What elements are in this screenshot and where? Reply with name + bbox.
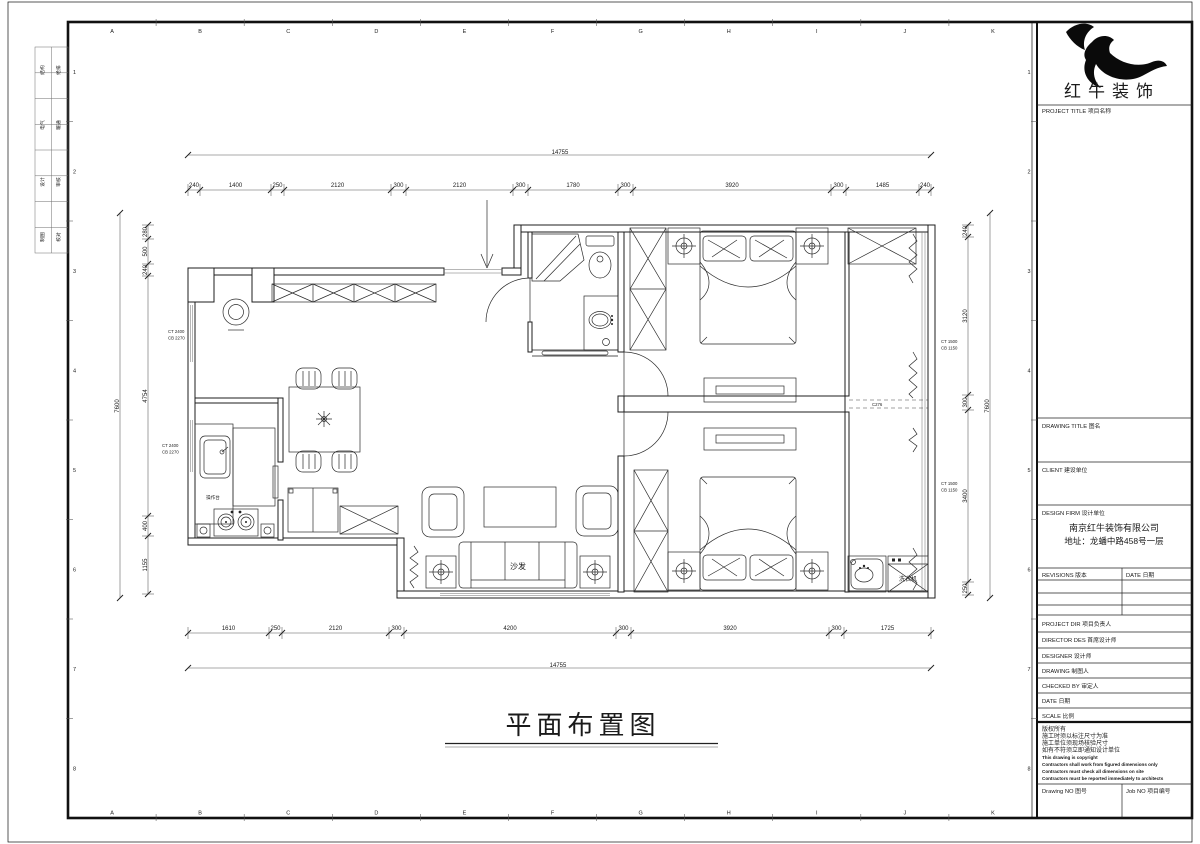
grid-letter: J [903,29,906,35]
lamp-icon [583,560,607,584]
window-mark: CB 2270 [168,336,185,341]
grid-letter: G [638,811,642,817]
dim-label: 300 [963,397,969,408]
kitchen-corner-posts [197,524,274,537]
door-bedroom-bottom [624,412,668,456]
cad-sheet: 2401400250212030021203001780300392030014… [0,0,1200,844]
shoe-cabinet [340,506,398,534]
plant-zigzag [410,546,418,588]
dim-label: 1780 [566,183,580,189]
sign-strip-label: 结构 [39,65,46,75]
sign-strip-label: 校对 [55,232,62,242]
dim-label: 3920 [725,183,739,189]
wardrobe-bedroom-top [630,228,666,350]
annotation-layer: 2401400250212030021203001780300392030014… [39,19,1171,821]
grid-letter: I [816,811,818,817]
dim-label: 250 [272,183,283,189]
grid-letter: J [903,811,906,817]
window-mark: CB 1150 [941,488,958,493]
sideboard-two-door [288,488,338,532]
dim-label: 1485 [876,183,890,189]
dim-label: 300 [620,183,631,189]
dim-label: 300 [831,626,842,632]
dim-label: 250 [270,626,281,632]
grid-number: 7 [1027,667,1030,673]
grid-letter: H [727,29,731,35]
tb-checked-by: CHECKED BY 审定人 [1042,682,1099,690]
tb-project-dir: PROJECT DIR 项目负责人 [1042,620,1111,628]
tb-address: 地址：龙蟠中路458号一层 [1064,536,1163,546]
dim-label: 300 [391,626,402,632]
grid-letter: F [551,811,555,817]
grid-letter: D [374,29,378,35]
grid-number: 2 [73,169,76,175]
grid-number: 3 [73,269,76,275]
tb-note: Contractors must check all dimensions on… [1042,769,1144,774]
dim-label: 7600 [985,399,991,413]
tb-designer: DESIGNER 设计师 [1042,652,1091,660]
sign-strip-label: 设计 [39,177,46,187]
tb-note: 如有不符须立即通知设计单位 [1042,746,1120,754]
tb-revisions: REVISIONS 版本 [1042,571,1087,579]
bathroom-basin [584,296,618,350]
tb-note: 版权所有 [1042,725,1066,733]
grid-number: 5 [1027,468,1030,474]
dim-label: 240 [920,183,931,189]
dim-label: 280 [143,226,149,237]
window-mark: CT 2400 [162,443,179,448]
tb-scale: SCALE 比例 [1042,712,1074,720]
grid-letter: A [110,811,114,817]
grid-letter: F [551,29,555,35]
coffee-table [484,487,556,527]
grid-letter: C [286,811,290,817]
kitchen-sink [200,436,230,478]
grid-number: 5 [73,468,76,474]
grid-letter: D [374,811,378,817]
grid-number: 4 [73,368,76,374]
dim-label: 1155 [143,558,149,572]
dim-label: 1725 [881,626,895,632]
dim-label: 4754 [143,389,149,403]
bed-top [700,231,796,344]
dim-label: 7600 [115,399,121,413]
grid-number: 6 [73,567,76,573]
door-bedroom-top [624,352,668,396]
dim-label: 250 [963,583,969,594]
tb-note: Contractors must be reported immediately… [1042,776,1164,781]
tb-date-col: DATE 日期 [1126,572,1154,579]
tb-job-no: Job NO 项目编号 [1126,787,1171,795]
sign-strip-label: 制图 [39,232,46,242]
tb-design-firm: DESIGN FIRM 设计单位 [1042,509,1105,517]
grid-letter: B [198,29,202,35]
dim-label: 240 [143,264,149,275]
tb-client: CLIENT 建设单位 [1042,466,1088,474]
sofa-label: 沙发 [510,561,526,571]
dresser-bedroom-bottom [704,428,796,450]
grid-letter: E [463,29,467,35]
grid-letter: E [463,811,467,817]
table-centerpiece [316,411,332,427]
dim-label: 300 [515,183,526,189]
hall-cabinet-row [272,284,436,302]
sign-strip-label: 审核 [55,177,62,187]
grid-number: 1 [1027,70,1030,76]
laundry-basin [848,556,886,592]
grid-letter: A [110,29,114,35]
tb-note: Contractors shall work from figured dime… [1042,762,1158,767]
kitchen-stove [214,509,258,536]
grid-number: 3 [1027,269,1030,275]
tb-note: 施工时须以标注尺寸为准 [1042,732,1108,740]
shower [532,234,584,281]
tb-drawing-no: Drawing NO 图号 [1042,787,1087,795]
logo-bull-icon [1066,24,1167,88]
drawing-title-underline [445,744,718,748]
dim-label: 14755 [550,663,567,669]
dim-label: 400 [143,520,149,531]
sign-strip-label: 暖通 [55,120,62,130]
plant-pot [223,299,249,330]
armchair-right [576,486,618,536]
entry-arrow [481,200,493,268]
lamp-icon [672,234,696,258]
balcony-mark: C276 [872,402,883,407]
armchair-left [422,487,464,537]
dining-table [289,387,360,452]
signature-strip [35,47,68,253]
grid-letter: G [638,29,642,35]
grid-number: 8 [1027,766,1030,772]
toilet [586,236,614,278]
dim-label: 3400 [963,489,969,503]
tb-drawing-title: DRAWING TITLE 图名 [1042,422,1100,430]
dim-label: 240 [189,183,200,189]
window-mark: CB 2270 [162,450,179,455]
dim-label: 2120 [329,626,343,632]
counter-label: 操作台 [206,494,220,501]
tb-project-title: PROJECT TITLE 项目名称 [1042,107,1111,115]
page-title: 平面布置图 [505,710,660,740]
grid-letter: H [727,811,731,817]
lamp-icon [429,560,453,584]
tb-note: This drawing is copyright [1042,755,1098,760]
dim-label: 3120 [963,309,969,323]
tb-drawing-by: DRAWING 制图人 [1042,667,1089,675]
grid-number: 1 [73,70,76,76]
dim-label: 3920 [723,626,737,632]
dim-label: 500 [143,246,149,257]
grid-letter: K [991,811,995,817]
window-mark: CB 1150 [941,346,958,351]
window-mark: CT 1500 [941,339,958,344]
dim-label: 300 [393,183,404,189]
dim-label: 300 [833,183,844,189]
logo-text: 红牛装饰 [1064,82,1160,101]
washer-label: 洗衣机 [899,575,917,583]
grid-letter: C [286,29,290,35]
tb-director-des: DIRECTOR DES 首席设计师 [1042,636,1116,644]
dim-label: 4200 [503,626,517,632]
tb-note: 施工单位须现场核验尺寸 [1042,739,1108,747]
grid-number: 6 [1027,567,1030,573]
dim-label: 14755 [552,150,569,156]
sign-strip-label: 电气 [39,120,46,130]
dim-label: 300 [618,626,629,632]
floor-plan-drawing: 2401400250212030021203001780300392030014… [0,0,1200,844]
tb-company: 南京红牛装饰有限公司 [1069,522,1159,533]
sign-strip-label: 给排 [55,65,62,75]
grid-letter: B [198,811,202,817]
door-bathroom [486,278,530,322]
tb-date: DATE 日期 [1042,698,1070,705]
window-mark: CT 1500 [941,481,958,486]
grid-number: 2 [1027,169,1030,175]
wardrobe-bedroom-bottom [634,470,668,592]
bed-bottom [700,477,796,590]
dim-label: 1400 [229,183,243,189]
lamp-icon [800,559,824,583]
dim-label: 1610 [222,626,236,632]
grid-number: 8 [73,766,76,772]
lamp-icon [672,559,696,583]
balcony-cabinet [848,228,916,264]
window-mark: CT 2400 [168,329,185,334]
curtain-zigzags [909,234,917,590]
dim-label: 2120 [331,183,345,189]
lamp-icon [800,234,824,258]
dim-label: 2120 [453,183,467,189]
grid-number: 7 [73,667,76,673]
grid-letter: K [991,29,995,35]
grid-number: 4 [1027,368,1030,374]
grid-letter: I [816,29,818,35]
dim-label: 240 [963,225,969,236]
door-kitchen-slider [273,466,278,498]
